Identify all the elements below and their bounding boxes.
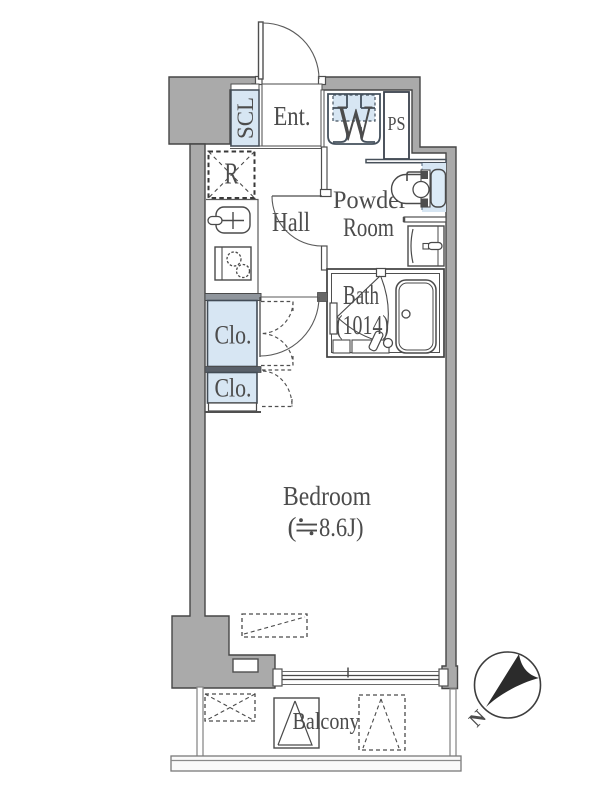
- svg-text:PS: PS: [388, 113, 406, 135]
- svg-text:Room: Room: [343, 213, 394, 242]
- svg-text:Bedroom: Bedroom: [283, 480, 371, 511]
- svg-text:R: R: [225, 156, 239, 191]
- svg-text:Clo.: Clo.: [215, 374, 252, 403]
- svg-text:Hall: Hall: [272, 207, 310, 237]
- svg-text:8.6J): 8.6J): [319, 513, 364, 542]
- svg-text:Balcony: Balcony: [293, 709, 360, 735]
- svg-text:(: (: [288, 512, 297, 542]
- svg-text:Clo.: Clo.: [215, 321, 252, 350]
- svg-text:Bath: Bath: [343, 280, 379, 310]
- svg-text:Ent.: Ent.: [274, 101, 311, 131]
- svg-text:W: W: [338, 96, 374, 152]
- svg-text:SCL: SCL: [233, 97, 258, 139]
- svg-text:(1014): (1014): [336, 310, 389, 340]
